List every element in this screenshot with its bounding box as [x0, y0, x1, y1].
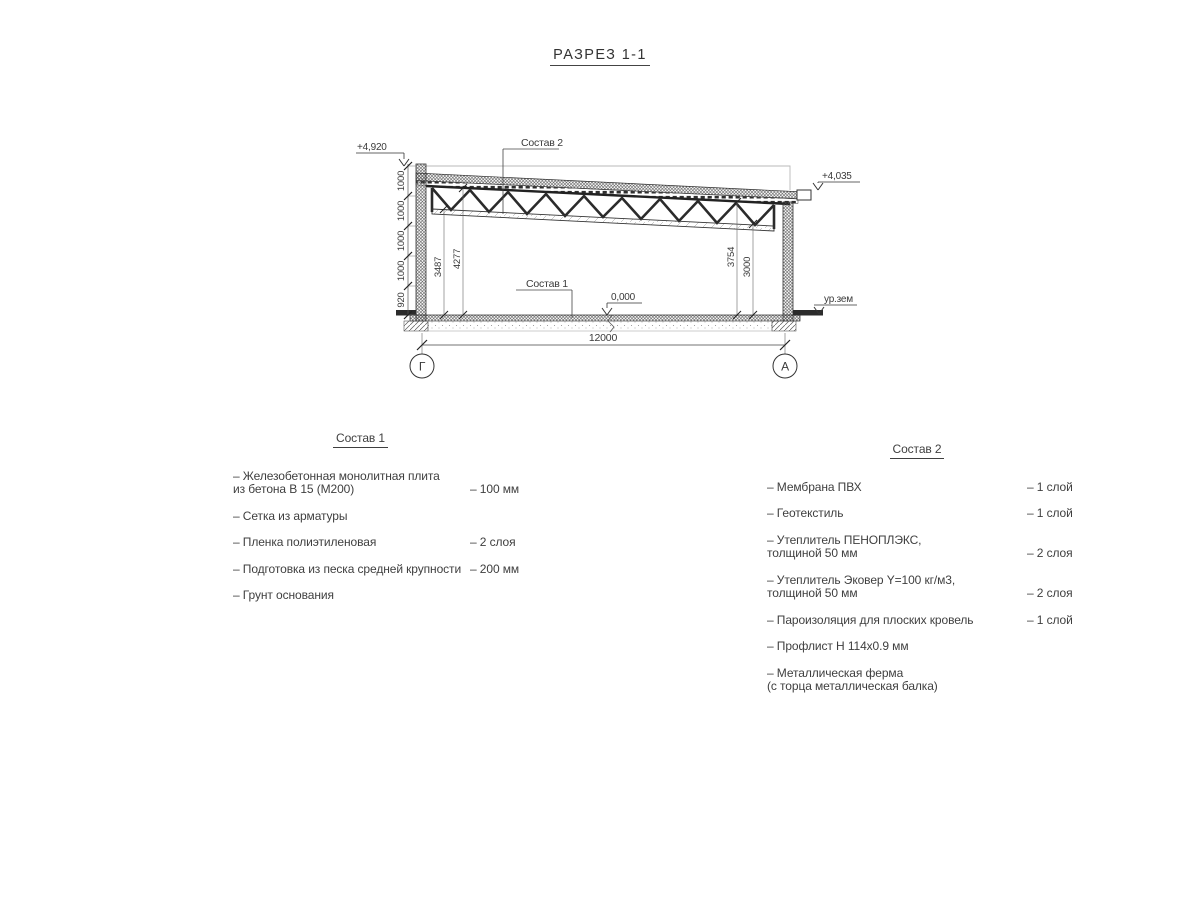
- dim-920: 920: [396, 292, 407, 307]
- elevation-parapet: [356, 153, 409, 166]
- dim-3000: 3000: [742, 257, 753, 277]
- composition-1-title: Состав 1: [333, 432, 388, 448]
- dim-4277: 4277: [452, 249, 463, 269]
- material-name: – Пароизоляция для плоских кровель: [767, 614, 1027, 628]
- material-value: – 1 слой: [1027, 481, 1073, 495]
- material-name: – Сетка из арматуры: [233, 510, 470, 524]
- material-row: – Металлическая ферма (с торца металличе…: [767, 667, 1087, 694]
- material-value: – 2 слоя: [1027, 547, 1073, 561]
- dim-1000-3: 1000: [396, 231, 407, 251]
- elevation-roof-right: [813, 182, 860, 190]
- left-dimension-chain: 1000 1000 1000 1000 920: [396, 162, 416, 319]
- composition-list-2: Состав 2 – Мембрана ПВХ – 1 слой – Геоте…: [767, 443, 1087, 707]
- axis-right-label: А: [781, 360, 789, 374]
- dim-1000-1: 1000: [396, 171, 407, 191]
- axis-left-label: Г: [419, 360, 426, 374]
- material-row: – Железобетонная монолитная плита из бет…: [233, 470, 533, 497]
- material-value: – 2 слоя: [470, 536, 516, 550]
- material-name: – Утеплитель ПЕНОПЛЭКС, толщиной 50 мм: [767, 534, 1027, 561]
- elevation-roof-right-label: +4,035: [822, 171, 852, 182]
- material-value: – 1 слой: [1027, 507, 1073, 521]
- material-value: – 100 мм: [470, 483, 519, 497]
- right-wall: [783, 202, 793, 321]
- elevation-floor-label: 0,000: [611, 292, 636, 303]
- elevation-parapet-label: +4,920: [357, 142, 387, 153]
- material-name: – Подготовка из песка средней крупности: [233, 563, 470, 577]
- composition-2-header: Состав 2: [767, 443, 1067, 459]
- dim-3754: 3754: [726, 247, 737, 267]
- material-name: – Металлическая ферма (с торца металличе…: [767, 667, 1027, 694]
- drawing-sheet: РАЗРЕЗ 1-1: [0, 0, 1200, 900]
- material-value: – 200 мм: [470, 563, 519, 577]
- callout-floor-label: Состав 1: [526, 278, 568, 290]
- material-value: – 1 слой: [1027, 614, 1073, 628]
- axis-markers: Г А: [410, 354, 797, 378]
- ground-level-mark: [814, 305, 857, 314]
- material-name: – Профлист Н 114х0.9 мм: [767, 640, 1027, 654]
- material-name: – Геотекстиль: [767, 507, 1027, 521]
- ground-level-label: ур.зем: [824, 294, 853, 305]
- composition-1-header: Состав 1: [233, 432, 488, 448]
- span-dim-label: 12000: [589, 332, 618, 344]
- material-name: – Утеплитель Эковер Y=100 кг/м3, толщино…: [767, 574, 1027, 601]
- material-row: – Грунт основания: [233, 589, 533, 603]
- material-name: – Пленка полиэтиленовая: [233, 536, 470, 550]
- material-row: – Сетка из арматуры: [233, 510, 533, 524]
- material-row: – Пленка полиэтиленовая – 2 слоя: [233, 536, 533, 550]
- callout-roof-label: Состав 2: [521, 137, 563, 149]
- material-row: – Подготовка из песка средней крупности …: [233, 563, 533, 577]
- material-row: – Мембрана ПВХ – 1 слой: [767, 481, 1087, 495]
- material-row: – Утеплитель ПЕНОПЛЭКС, толщиной 50 мм –…: [767, 534, 1087, 561]
- dim-1000-2: 1000: [396, 201, 407, 221]
- material-row: – Пароизоляция для плоских кровель – 1 с…: [767, 614, 1087, 628]
- floor-slab: [396, 310, 823, 332]
- section-drawing: 1000 1000 1000 1000 920 3487 4277 3754: [0, 0, 1200, 430]
- material-row: – Профлист Н 114х0.9 мм: [767, 640, 1087, 654]
- elevation-floor: [602, 303, 642, 315]
- material-name: – Железобетонная монолитная плита из бет…: [233, 470, 470, 497]
- material-value: – 2 слоя: [1027, 587, 1073, 601]
- material-name: – Мембрана ПВХ: [767, 481, 1027, 495]
- material-name: – Грунт основания: [233, 589, 470, 603]
- callout-floor: Состав 1: [516, 278, 572, 318]
- composition-list-1: Состав 1 – Железобетонная монолитная пли…: [233, 432, 533, 616]
- roof-fascia: [797, 190, 811, 200]
- composition-2-title: Состав 2: [890, 443, 945, 459]
- span-dimension: 12000: [417, 332, 790, 354]
- material-row: – Утеплитель Эковер Y=100 кг/м3, толщино…: [767, 574, 1087, 601]
- left-wall: [416, 164, 426, 321]
- ground-strip-left: [396, 310, 416, 316]
- dim-3487: 3487: [433, 257, 444, 277]
- roof-assembly: [416, 173, 811, 204]
- dim-1000-4: 1000: [396, 261, 407, 281]
- material-row: – Геотекстиль – 1 слой: [767, 507, 1087, 521]
